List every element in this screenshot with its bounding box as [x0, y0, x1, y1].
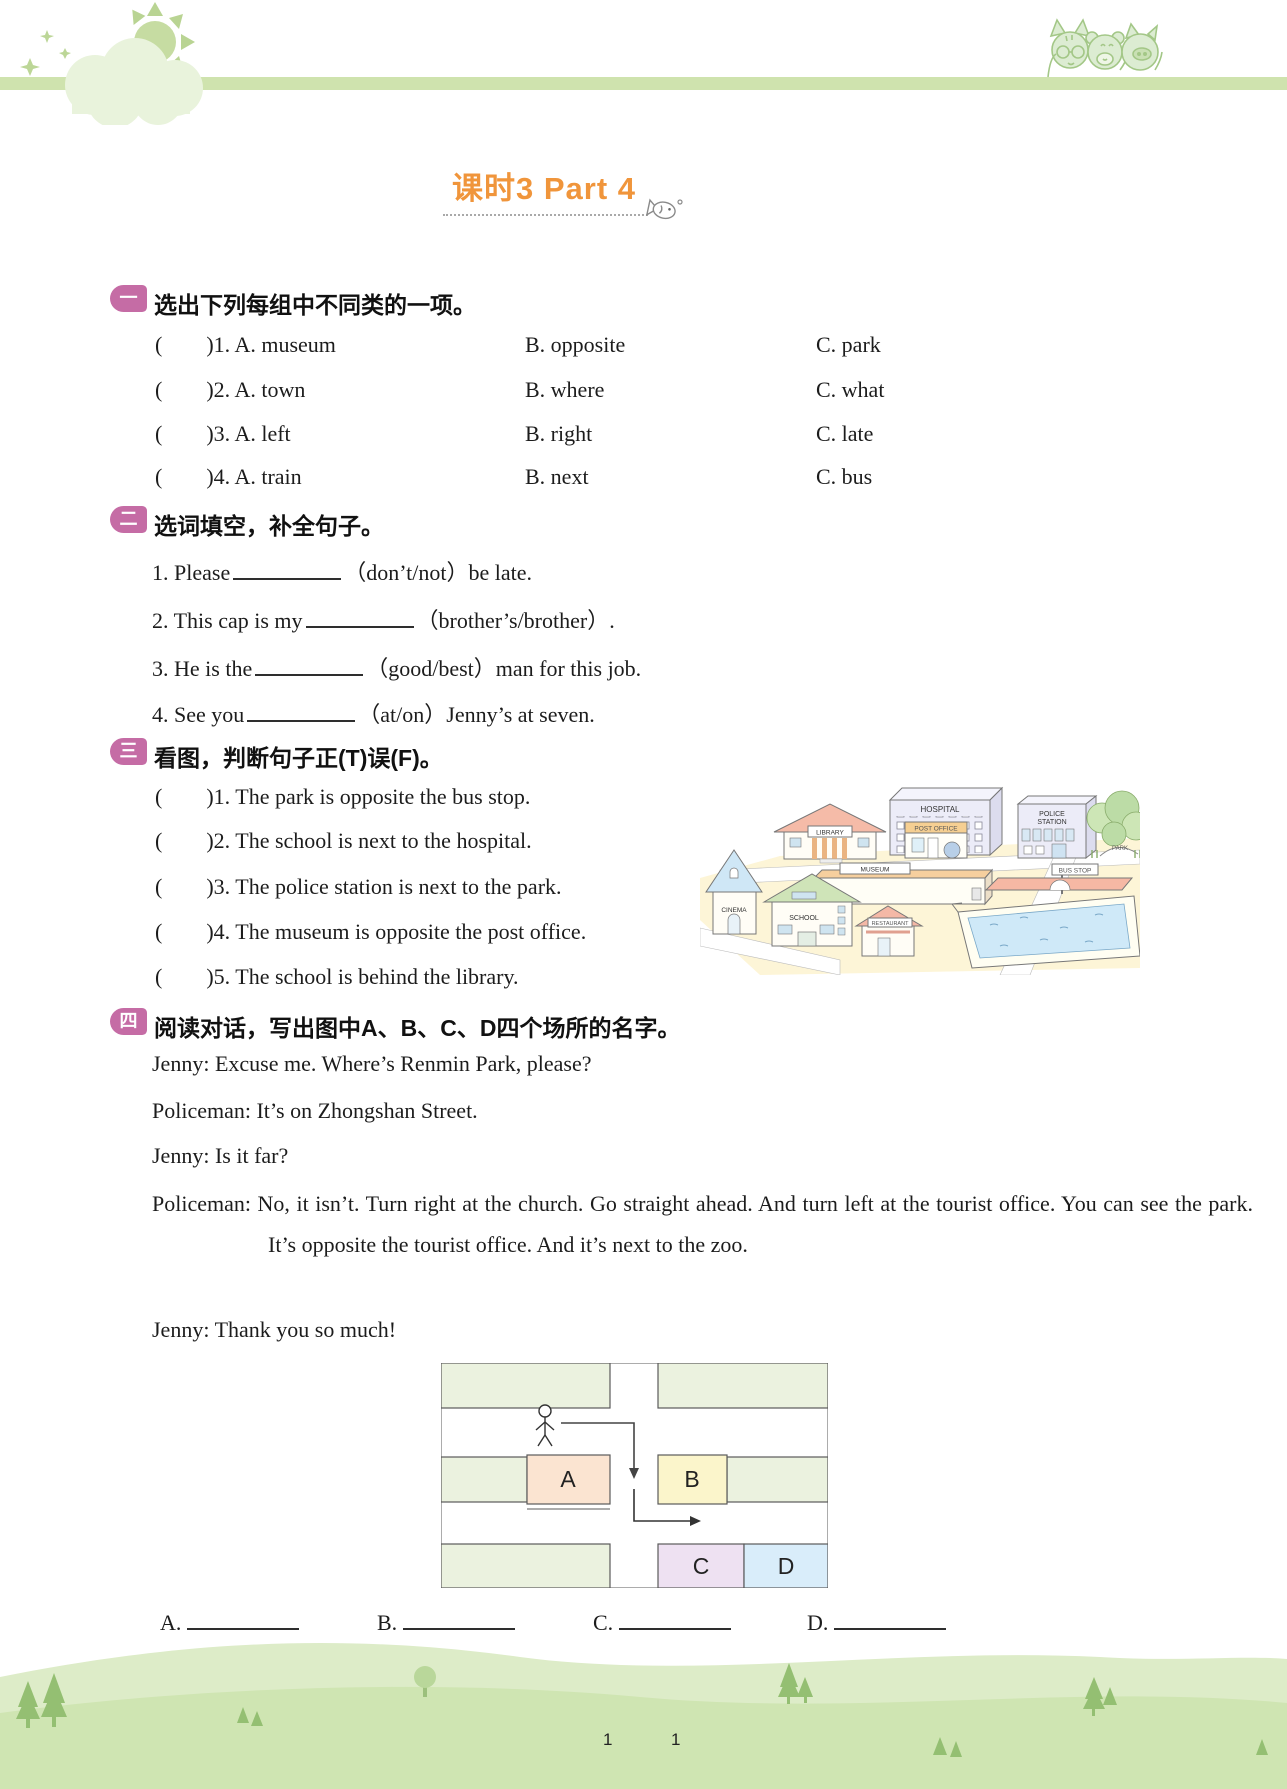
worksheet-page: 课时3 Part 4 一 选出下列每组中不同类的一项。 ()1. A. muse… [0, 0, 1287, 1789]
answer-c-blank[interactable] [619, 1606, 731, 1630]
svg-text:POLICE: POLICE [1039, 811, 1065, 818]
tf-row: ()4. The museum is opposite the post off… [155, 917, 586, 947]
section-two-heading: 选词填空，补全句子。 [154, 507, 384, 541]
dialogue-line: Jenny: Thank you so much! [152, 1309, 1137, 1350]
svg-text:MUSEUM: MUSEUM [861, 867, 890, 874]
fish-doodle-icon [645, 197, 685, 225]
header-decoration [0, 0, 1287, 125]
section-three-heading: 看图，判断句子正(T)误(F)。 [154, 739, 443, 773]
block-green [658, 1363, 828, 1408]
dialogue-line: Policeman: It’s on Zhongshan Street. [152, 1090, 1137, 1131]
stars-decoration [20, 30, 71, 76]
dialogue-line: Policeman: No, it isn’t. Turn right at t… [152, 1183, 1253, 1265]
fill-blank[interactable] [233, 556, 341, 580]
option-c: C. late [816, 419, 873, 449]
fill-item: 4. See you（at/on）Jenny’s at seven. [152, 698, 595, 730]
diagram-label-d: D [778, 1553, 795, 1579]
answer-paren[interactable]: () [155, 964, 214, 989]
speaker: Jenny: [152, 1143, 209, 1168]
answer-b-blank[interactable] [403, 1606, 515, 1630]
police-station-building: POLICE STATION [1018, 796, 1096, 858]
tf-row: ()5. The school is behind the library. [155, 962, 519, 992]
tf-row: ()1. The park is opposite the bus stop. [155, 782, 530, 812]
animal-friends-decoration [1048, 20, 1162, 77]
section-one-badge: 一 [110, 285, 147, 312]
speaker: Jenny: [152, 1317, 209, 1342]
fill-item: 2. This cap is my（brother’s/brother）. [152, 604, 615, 636]
pig-icon [1122, 24, 1162, 70]
answer-paren[interactable]: () [155, 874, 214, 899]
title-underline [443, 196, 648, 216]
option-a: A. train [234, 464, 301, 489]
speaker: Policeman: [152, 1191, 251, 1216]
answer-paren[interactable]: ()1. A. museum [155, 330, 336, 360]
option-a: A. town [234, 377, 305, 402]
option-b: B. right [525, 419, 592, 449]
option-b: B. opposite [525, 330, 625, 360]
section-four-badge: 四 [110, 1008, 147, 1035]
diagram-label-a: A [560, 1466, 576, 1492]
option-c: C. what [816, 375, 884, 405]
page-number-right: 1 [671, 1730, 680, 1750]
answer-b: B. [377, 1606, 515, 1638]
svg-text:HOSPITAL: HOSPITAL [921, 805, 961, 814]
svg-text:CINEMA: CINEMA [721, 907, 747, 914]
option-c: C. park [816, 330, 881, 360]
cloud-icon [65, 38, 203, 125]
svg-text:SCHOOL: SCHOOL [789, 915, 819, 922]
cinema-building: CINEMA [706, 850, 762, 934]
speaker: Jenny: [152, 1051, 209, 1076]
answer-paren[interactable]: ()2. A. town [155, 375, 305, 405]
answer-paren[interactable]: () [155, 919, 214, 944]
block-green [441, 1544, 610, 1588]
tf-row: ()3. The police station is next to the p… [155, 872, 562, 902]
answer-a-blank[interactable] [187, 1606, 299, 1630]
answer-a: A. [160, 1606, 299, 1638]
block-green [441, 1363, 610, 1408]
option-c: C. bus [816, 462, 872, 492]
answer-paren[interactable]: ()4. A. train [155, 462, 302, 492]
post-office-building: POST OFFICE [905, 822, 967, 858]
answer-c: C. [593, 1606, 731, 1638]
street-diagram: A B C D [441, 1363, 828, 1588]
section-two-badge: 二 [110, 506, 147, 533]
person-icon [536, 1405, 554, 1446]
fill-item: 1. Please（don’t/not）be late. [152, 556, 532, 588]
section-three-badge: 三 [110, 738, 147, 765]
dialogue-line: Jenny: Is it far? [152, 1135, 1137, 1176]
fill-blank[interactable] [247, 698, 355, 722]
library-building: LIBRARY [774, 804, 886, 863]
option-a: A. museum [234, 332, 335, 357]
block-green [727, 1457, 828, 1502]
fill-item: 3. He is the（good/best）man for this job. [152, 652, 641, 684]
option-b: B. where [525, 375, 604, 405]
section-one-heading: 选出下列每组中不同类的一项。 [154, 286, 476, 320]
answer-d: D. [807, 1606, 946, 1638]
fill-blank[interactable] [255, 652, 363, 676]
svg-text:LIBRARY: LIBRARY [816, 830, 844, 837]
section-four-heading: 阅读对话，写出图中A、B、C、D四个场所的名字。 [154, 1009, 680, 1043]
town-map-illustration: HOSPITAL LIBRARY POST OFFICE [700, 760, 1140, 975]
answer-d-blank[interactable] [834, 1606, 946, 1630]
page-number-left: 1 [603, 1730, 612, 1750]
answer-paren[interactable]: () [155, 828, 214, 853]
fill-blank[interactable] [306, 604, 414, 628]
svg-text:PARK: PARK [1112, 846, 1128, 852]
option-b: B. next [525, 462, 589, 492]
svg-text:POST OFFICE: POST OFFICE [914, 826, 958, 833]
option-a: A. left [234, 421, 290, 446]
svg-text:RESTAURANT: RESTAURANT [872, 921, 910, 927]
answer-paren[interactable]: ()3. A. left [155, 419, 291, 449]
speaker: Policeman: [152, 1098, 251, 1123]
block-green [441, 1457, 527, 1502]
tf-row: ()2. The school is next to the hospital. [155, 826, 532, 856]
diagram-label-b: B [684, 1466, 699, 1492]
answer-paren[interactable]: () [155, 784, 214, 809]
svg-text:STATION: STATION [1037, 819, 1066, 826]
footer-decoration [0, 1619, 1287, 1789]
dialogue-line: Jenny: Excuse me. Where’s Renmin Park, p… [152, 1043, 1137, 1084]
svg-text:BUS STOP: BUS STOP [1059, 868, 1092, 875]
cat-icon [1048, 20, 1089, 77]
diagram-label-c: C [693, 1553, 710, 1579]
